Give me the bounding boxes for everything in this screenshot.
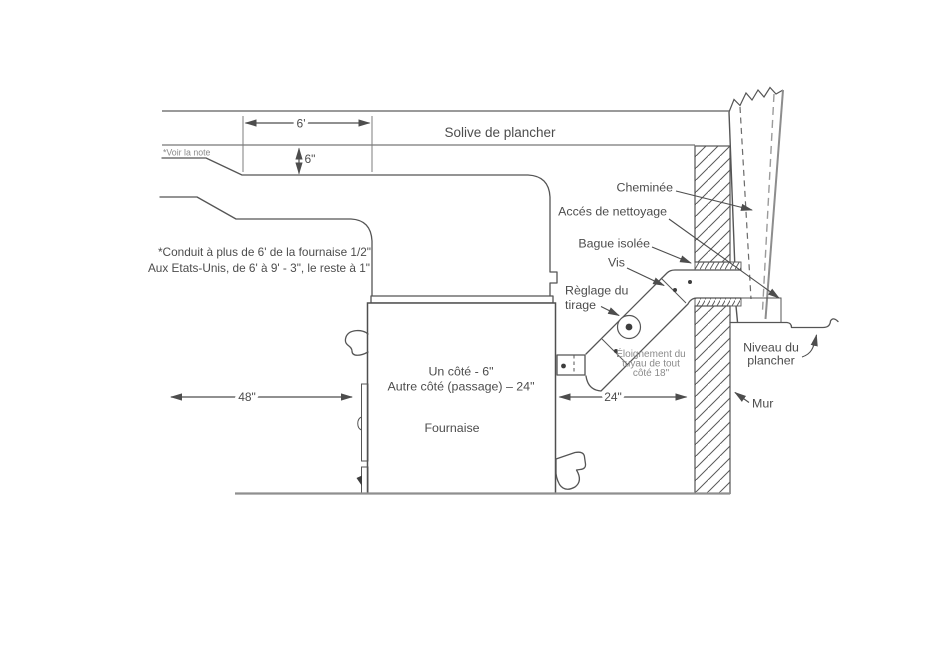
pipe-clearance-line3: côté 18" <box>633 368 670 379</box>
dim-48in-label: 48" <box>238 390 256 404</box>
floor-level-label-line1: Niveau du <box>743 341 799 355</box>
collar-screw-dot <box>561 364 566 369</box>
dim-6ft-label: 6' <box>297 117 306 131</box>
furnace-installation-diagram: Solive de plancher *Voir la note 6' 6" 4… <box>0 0 950 648</box>
dim-24in-label: 24" <box>604 390 622 404</box>
plenum-flange <box>371 296 553 303</box>
damper-knob-center <box>626 324 633 331</box>
chimney-label: Cheminée <box>617 181 674 195</box>
note-line2: Aux Etats-Unis, de 6' à 9' - 3", le rest… <box>148 261 370 275</box>
furnace-body <box>345 303 585 494</box>
insulated-ring-label: Bague isolée <box>578 237 650 251</box>
floor-level-label-line2: plancher <box>747 354 795 368</box>
see-note-label: *Voir la note <box>163 148 211 158</box>
dim-6in-label: 6" <box>305 152 316 166</box>
furnace-name-label: Fournaise <box>424 421 479 435</box>
wall-label: Mur <box>752 397 773 411</box>
damper-label-line1: Règlage du <box>565 284 628 298</box>
wall-upper-section <box>695 146 730 262</box>
pipe-screw-dot-2 <box>673 288 677 292</box>
furnace-clearance-line1: Un côté - 6" <box>428 365 493 379</box>
wall-lower-section <box>695 306 730 494</box>
thimble-bottom-band <box>695 298 741 306</box>
note-line1: *Conduit à plus de 6' de la fournaise 1/… <box>158 245 371 259</box>
cleaning-access-label: Accés de nettoyage <box>558 205 667 219</box>
joist-label: Solive de plancher <box>444 125 556 140</box>
damper-label-line2: tirage <box>565 298 596 312</box>
pipe-screw-dot-3 <box>688 280 692 284</box>
furnace-cabinet <box>368 303 556 494</box>
furnace-clearance-line2: Autre côté (passage) – 24" <box>388 380 535 394</box>
screw-label: Vis <box>608 256 625 270</box>
